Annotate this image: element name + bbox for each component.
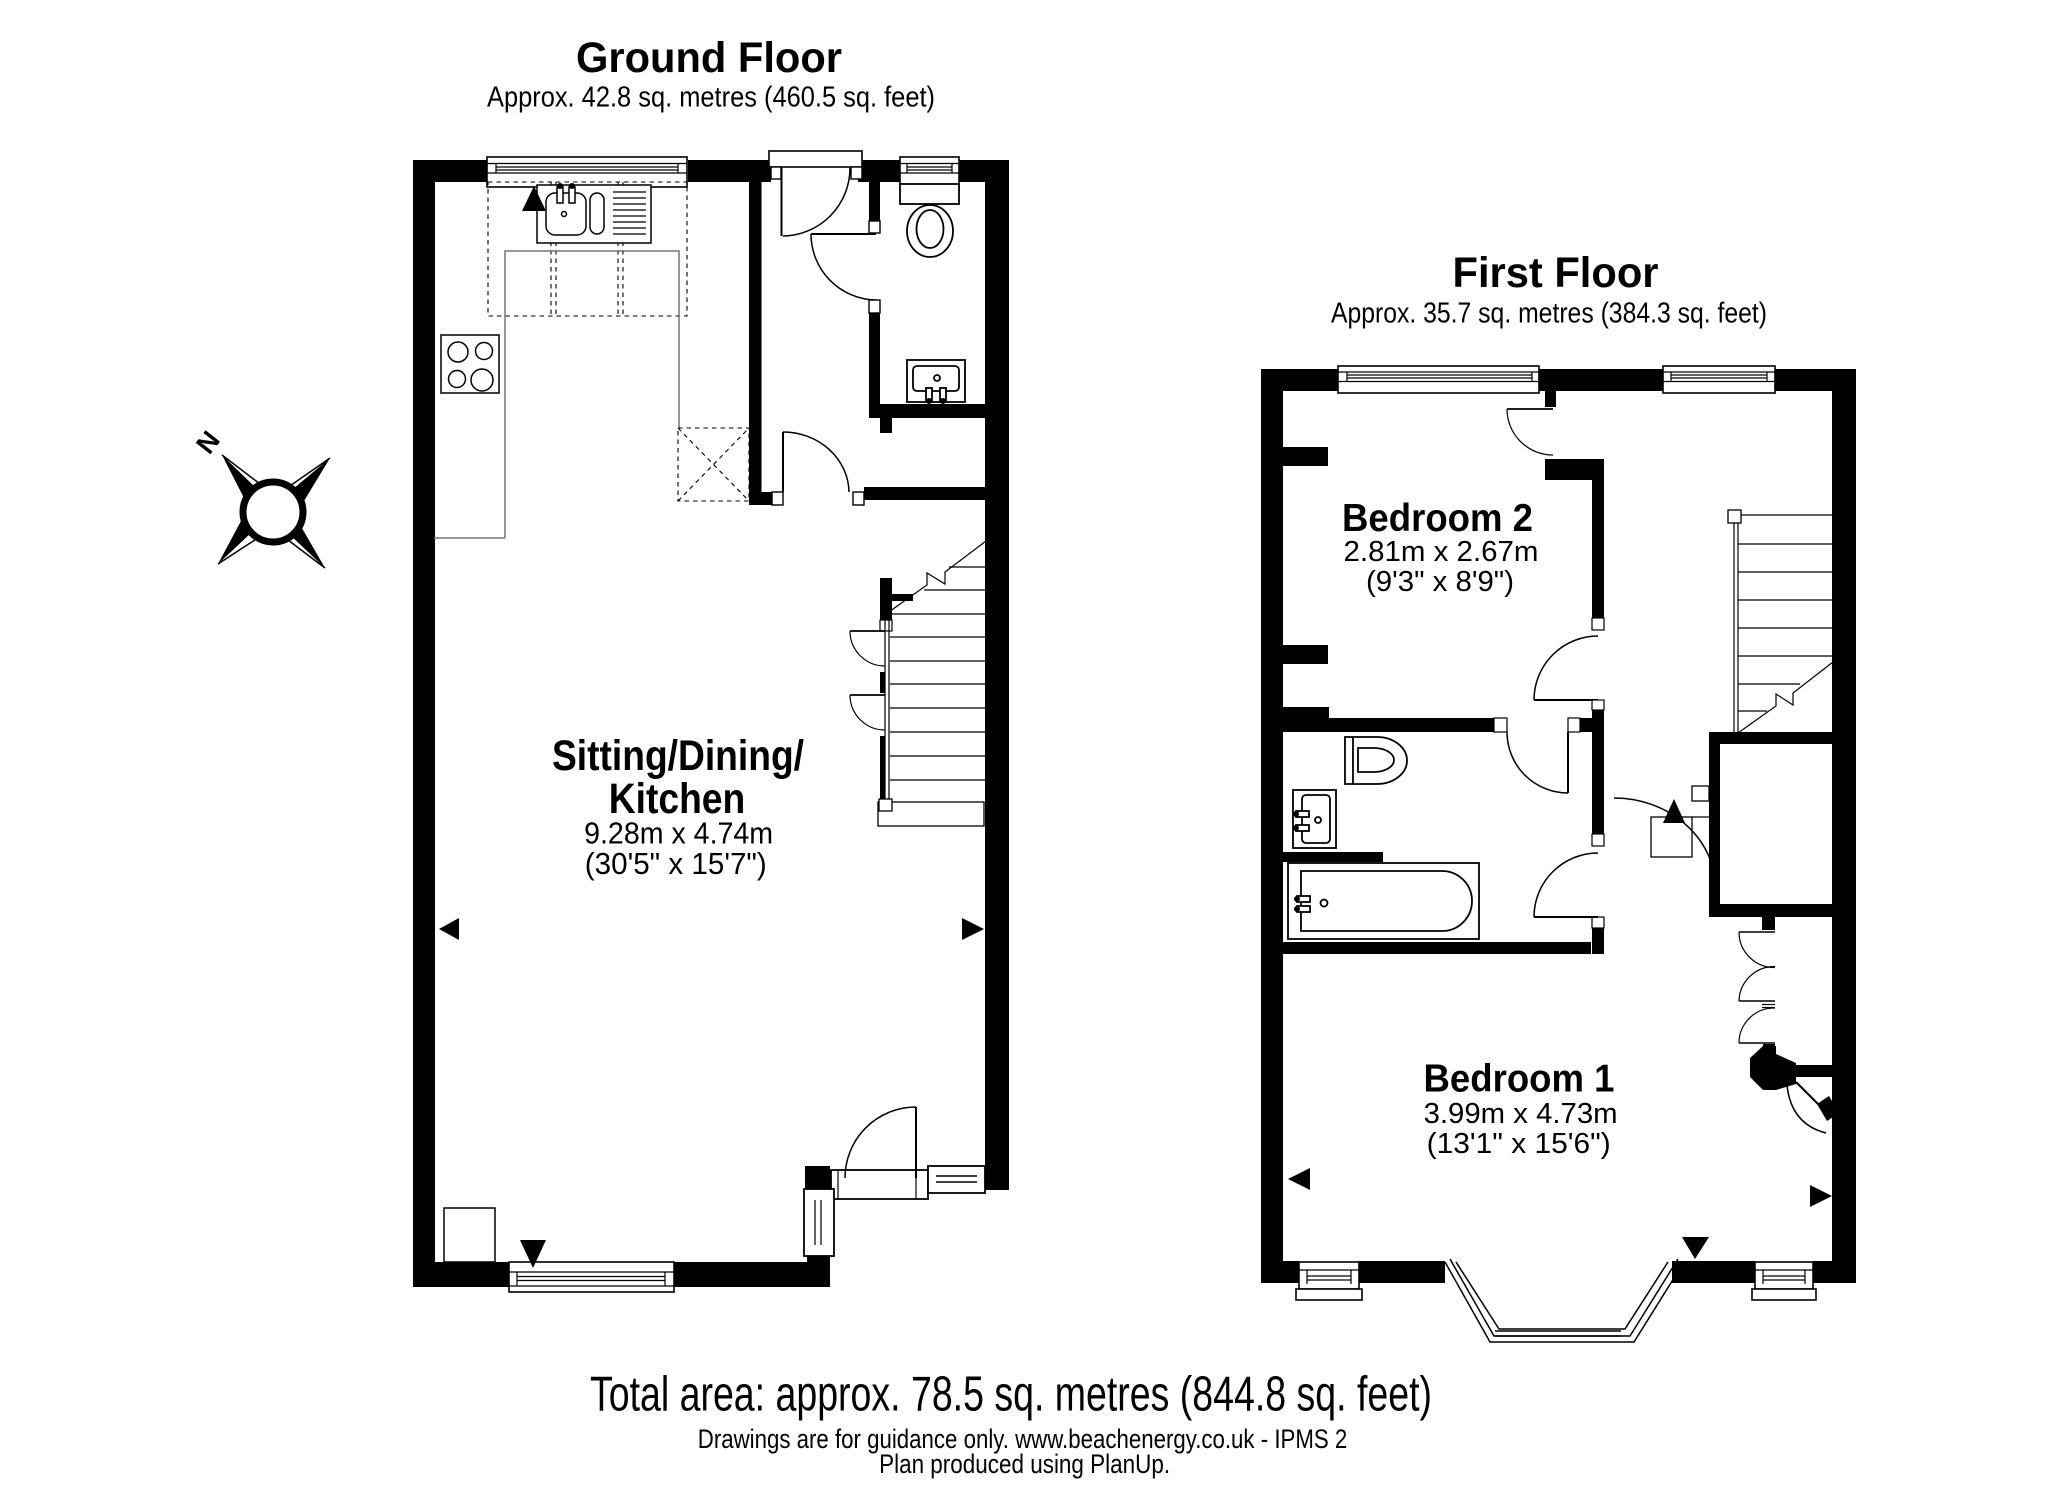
svg-text:Sitting/Dining/: Sitting/Dining/ xyxy=(552,732,804,780)
svg-text:(9'3" x 8'9"): (9'3" x 8'9") xyxy=(1366,566,1514,598)
svg-text:3.99m x 4.73m: 3.99m x 4.73m xyxy=(1424,1098,1618,1130)
svg-text:Ground Floor: Ground Floor xyxy=(576,34,842,82)
svg-text:Bedroom 1: Bedroom 1 xyxy=(1424,1058,1615,1101)
svg-text:Plan produced using PlanUp.: Plan produced using PlanUp. xyxy=(879,1449,1170,1479)
svg-text:(13'1" x 15'6"): (13'1" x 15'6") xyxy=(1427,1128,1611,1160)
svg-text:Bedroom 2: Bedroom 2 xyxy=(1342,497,1533,540)
svg-text:Approx. 42.8 sq. metres (460.5: Approx. 42.8 sq. metres (460.5 sq. feet) xyxy=(487,82,935,114)
svg-text:(30'5" x 15'7"): (30'5" x 15'7") xyxy=(585,846,767,881)
svg-text:First Floor: First Floor xyxy=(1453,249,1659,297)
svg-text:Approx. 35.7 sq. metres (384.3: Approx. 35.7 sq. metres (384.3 sq. feet) xyxy=(1331,298,1767,330)
svg-text:2.81m x 2.67m: 2.81m x 2.67m xyxy=(1344,536,1539,568)
svg-text:Total area: approx. 78.5 sq. m: Total area: approx. 78.5 sq. metres (844… xyxy=(590,1368,1432,1422)
